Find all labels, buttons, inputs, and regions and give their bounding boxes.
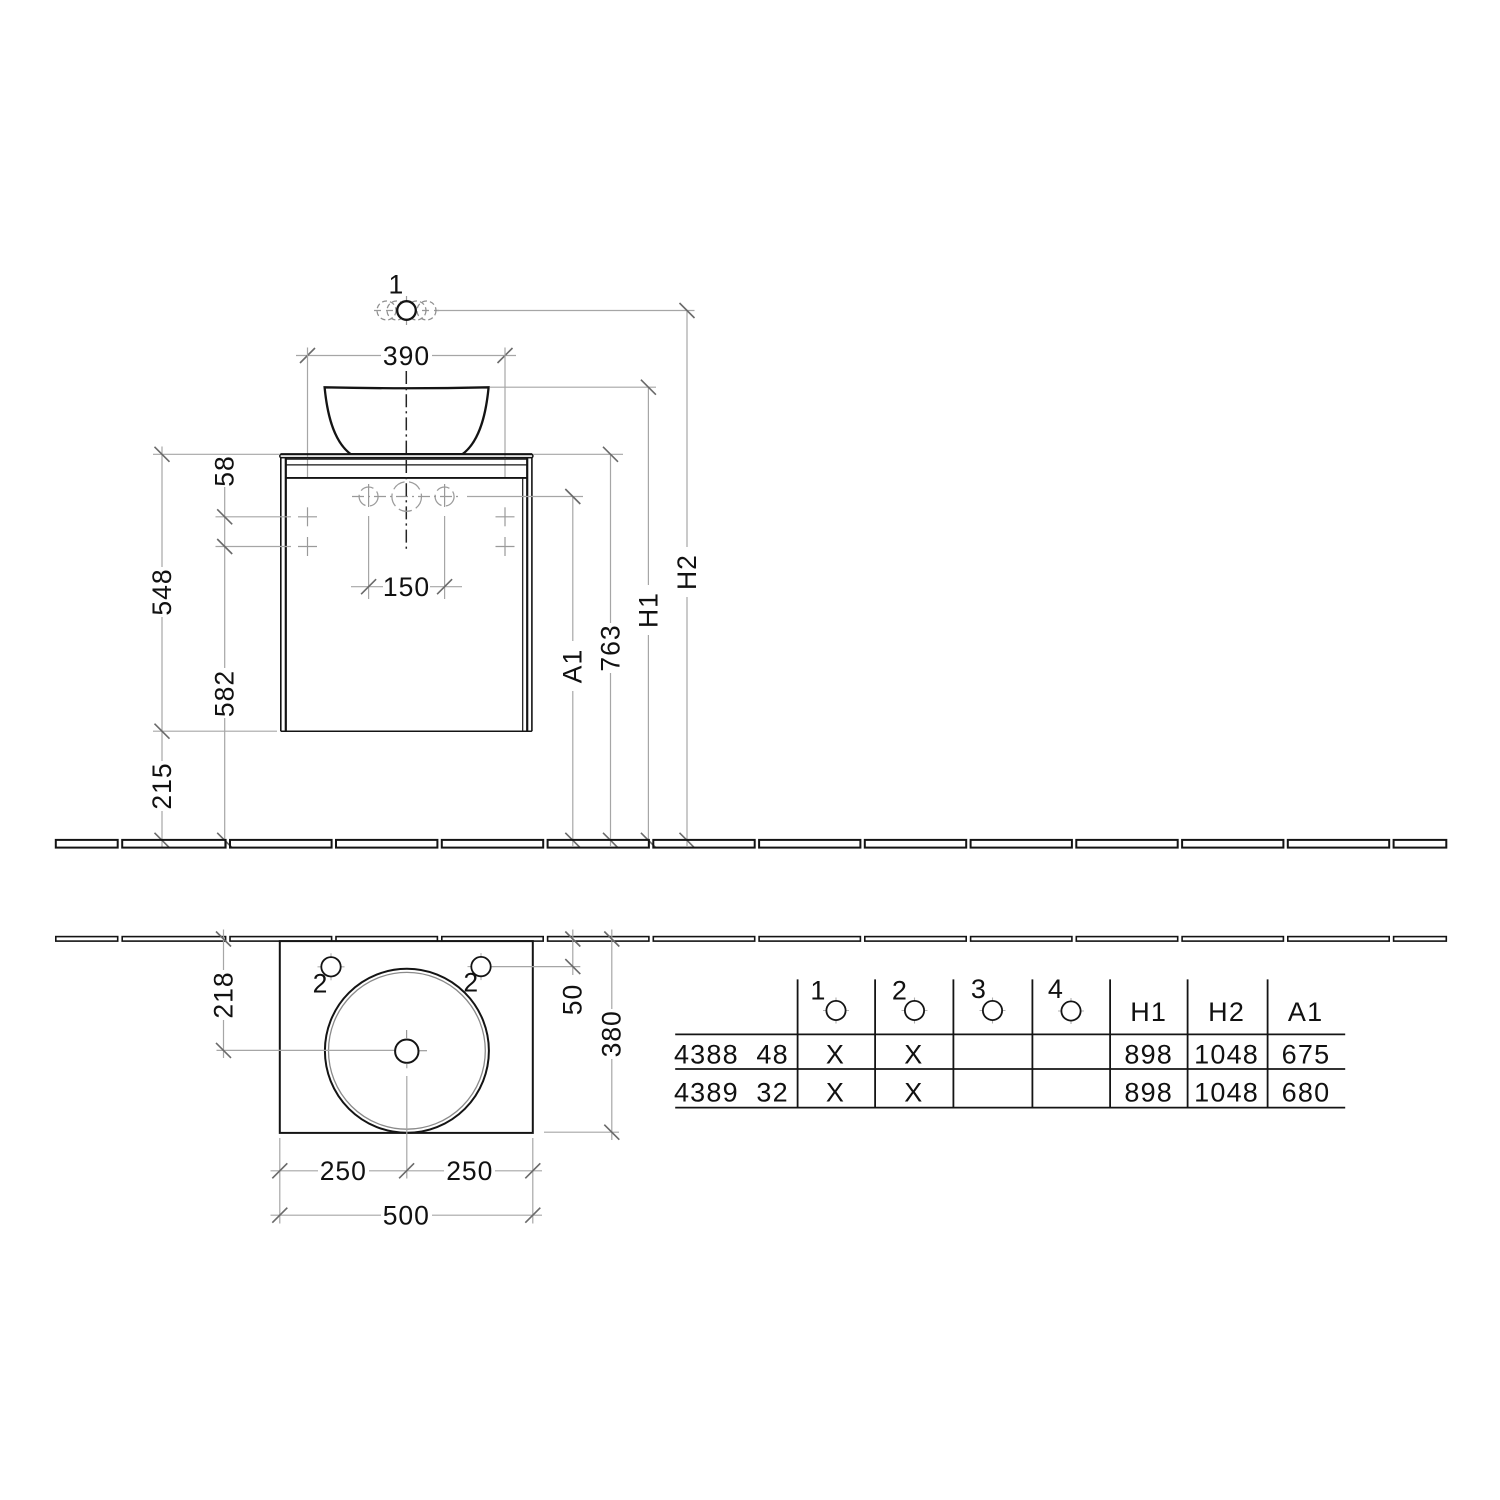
svg-text:380: 380	[597, 1010, 627, 1057]
svg-text:50: 50	[558, 984, 588, 1015]
svg-text:32: 32	[756, 1077, 788, 1107]
svg-text:H2: H2	[672, 554, 702, 590]
svg-text:250: 250	[320, 1156, 367, 1186]
svg-text:218: 218	[208, 971, 238, 1018]
svg-text:1048: 1048	[1194, 1039, 1259, 1069]
svg-text:1: 1	[389, 269, 405, 299]
svg-text:150: 150	[383, 572, 430, 602]
svg-text:A1: A1	[558, 649, 588, 683]
svg-text:3: 3	[971, 974, 987, 1004]
svg-text:4389: 4389	[674, 1077, 739, 1107]
svg-text:4388: 4388	[674, 1039, 739, 1069]
svg-text:48: 48	[756, 1039, 788, 1069]
svg-text:X: X	[904, 1039, 923, 1069]
svg-text:H1: H1	[1130, 997, 1167, 1027]
svg-text:675: 675	[1282, 1039, 1331, 1069]
svg-text:2: 2	[892, 976, 908, 1006]
svg-text:X: X	[904, 1077, 923, 1107]
svg-text:250: 250	[446, 1156, 493, 1186]
svg-text:2: 2	[463, 968, 479, 998]
svg-text:58: 58	[209, 455, 239, 486]
svg-text:X: X	[826, 1039, 845, 1069]
svg-text:898: 898	[1124, 1039, 1173, 1069]
svg-text:1: 1	[810, 976, 826, 1006]
svg-text:1048: 1048	[1194, 1077, 1259, 1107]
svg-text:2: 2	[313, 969, 329, 999]
svg-text:A1: A1	[1288, 997, 1323, 1027]
svg-text:582: 582	[210, 670, 240, 717]
svg-text:H1: H1	[633, 592, 663, 628]
svg-text:763: 763	[595, 624, 625, 671]
svg-text:X: X	[826, 1077, 845, 1107]
svg-text:215: 215	[147, 762, 177, 809]
svg-text:548: 548	[147, 568, 177, 615]
svg-text:500: 500	[383, 1201, 430, 1231]
svg-text:898: 898	[1124, 1077, 1173, 1107]
svg-text:680: 680	[1282, 1077, 1331, 1107]
svg-text:H2: H2	[1208, 997, 1245, 1027]
svg-text:390: 390	[383, 341, 430, 371]
svg-text:4: 4	[1048, 974, 1064, 1004]
